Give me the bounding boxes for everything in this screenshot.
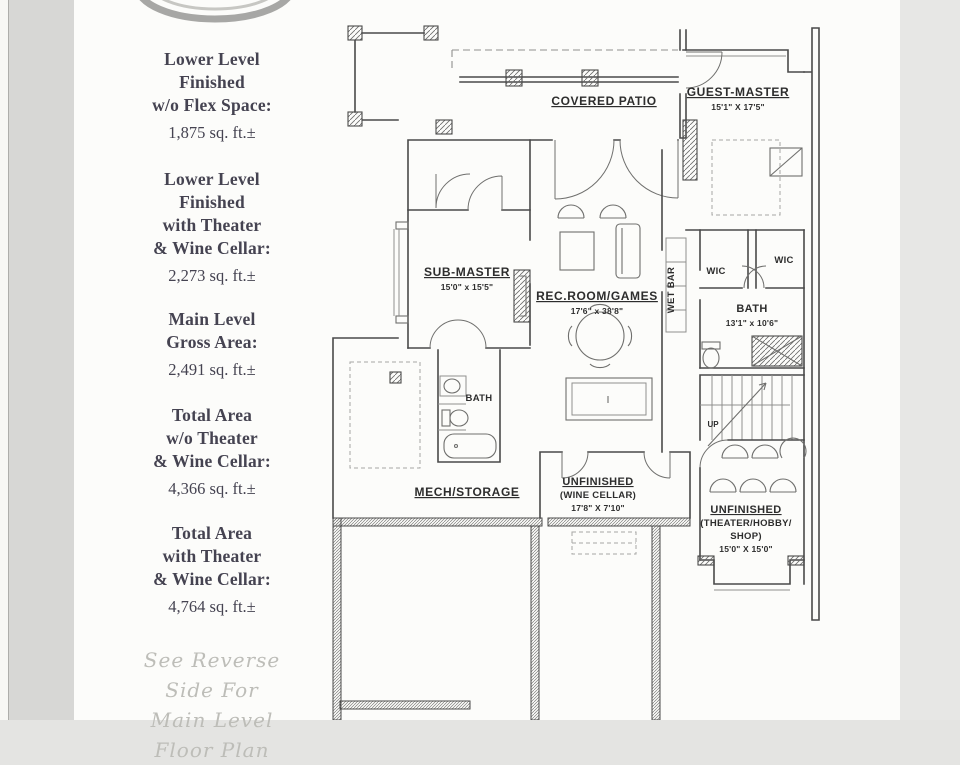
room-label-rec-room: REC.ROOM/GAMES xyxy=(536,289,658,303)
room-label-guest-master: GUEST-MASTER xyxy=(687,85,790,99)
sub-bath-walls xyxy=(438,350,500,462)
note-line: Floor Plan xyxy=(97,735,327,765)
room-dims-wine-cellar: 17'8" X 7'10" xyxy=(571,503,624,513)
room-dims-theater: 15'0" X 15'0" xyxy=(719,544,772,554)
room-label-wic-left: WIC xyxy=(706,266,725,277)
theater-chairs xyxy=(710,438,806,492)
floor-plan-drawing: COVERED PATIO GUEST-MASTER 15'1" X 17'5"… xyxy=(0,0,960,720)
room-label-covered-patio: COVERED PATIO xyxy=(551,94,656,108)
room-label-wine-cellar: UNFINISHED xyxy=(562,476,633,488)
room-sublabel2-theater: SHOP) xyxy=(730,531,762,542)
stairs-up-label: UP xyxy=(707,420,719,429)
room-label-bath-main: BATH xyxy=(736,303,767,315)
covered-patio-walls xyxy=(452,50,678,86)
wic-bath-walls xyxy=(700,230,804,368)
room-label-theater: UNFINISHED xyxy=(710,504,781,516)
room-dims-rec-room: 17'6" x 38'8" xyxy=(571,306,624,316)
mech-storage-walls xyxy=(333,338,420,518)
room-label-wet-bar: WET BAR xyxy=(666,267,677,313)
room-dims-sub-master: 15'0" x 15'5" xyxy=(441,282,494,292)
east-exterior-wall xyxy=(804,28,819,620)
room-label-sub-master: SUB-MASTER xyxy=(424,265,510,279)
sub-master-walls xyxy=(394,176,530,348)
room-label-mech-storage: MECH/STORAGE xyxy=(415,485,520,499)
guest-master-walls xyxy=(680,30,804,230)
room-dims-bath-main: 13'1" x 10'6" xyxy=(726,318,779,328)
room-label-wic-right: WIC xyxy=(774,255,793,266)
room-sublabel-wine-cellar: (WINE CELLAR) xyxy=(560,490,636,501)
room-label-bath-sub: BATH xyxy=(466,393,493,404)
room-dims-guest-master: 15'1" X 17'5" xyxy=(711,102,764,112)
basement-walls xyxy=(333,518,690,720)
entry-hall-walls xyxy=(408,140,530,210)
scanned-floorplan-page: { "page": { "bg_left": "#d7d7d5", "bg_ri… xyxy=(0,0,960,720)
realtor-logo-oval-icon xyxy=(137,0,293,19)
room-sublabel-theater: (THEATER/HOBBY/ xyxy=(700,518,791,529)
patio-wing-walls xyxy=(348,26,452,134)
